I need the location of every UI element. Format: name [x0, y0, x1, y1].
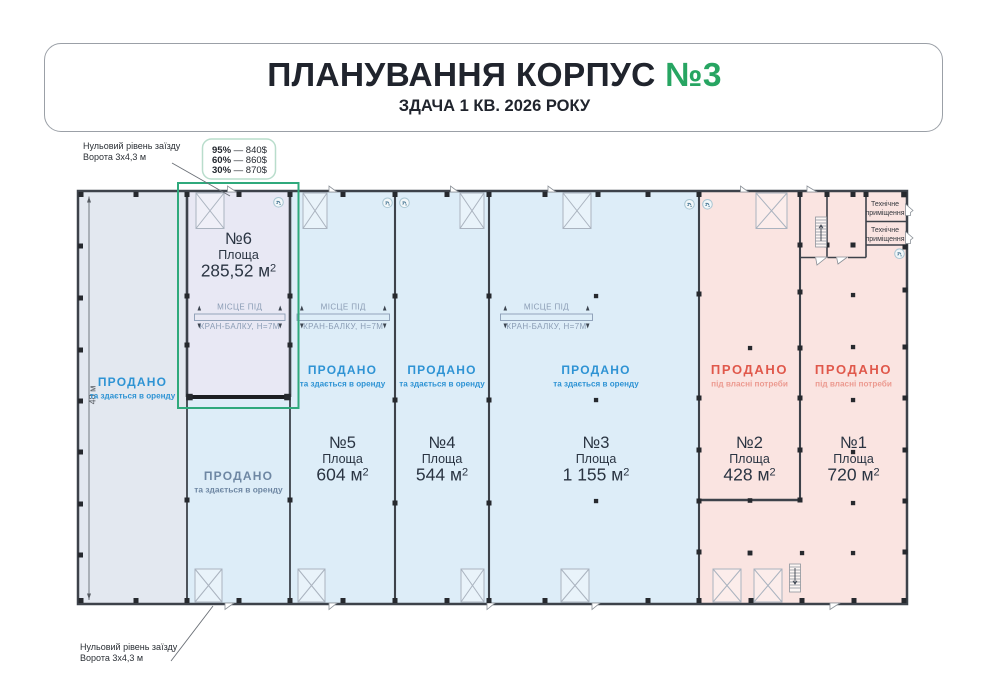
svg-text:приміщення: приміщення: [865, 235, 904, 243]
svg-text:№1: №1: [840, 434, 867, 452]
svg-text:№2: №2: [736, 434, 763, 452]
svg-text:30% — 870$: 30% — 870$: [212, 165, 268, 176]
svg-text:544 м2: 544 м2: [416, 465, 468, 485]
svg-text:ПРОДАНО: ПРОДАНО: [98, 375, 167, 389]
svg-text:під власні потреби: під власні потреби: [711, 379, 788, 389]
svg-text:720 м2: 720 м2: [827, 465, 879, 485]
svg-text:КРАН-БАЛКУ, Н=7М: КРАН-БАЛКУ, Н=7М: [200, 322, 280, 331]
svg-text:ПРОДАНО: ПРОДАНО: [711, 362, 788, 377]
svg-text:КРАН-БАЛКУ, Н=7М: КРАН-БАЛКУ, Н=7М: [506, 322, 586, 331]
svg-text:під власні потреби: під власні потреби: [815, 379, 892, 389]
svg-text:ПРОДАНО: ПРОДАНО: [815, 362, 892, 377]
svg-text:Ворота 3х4,3 м: Ворота 3х4,3 м: [83, 152, 146, 162]
svg-text:№5: №5: [329, 434, 356, 452]
svg-text:285,52 м2: 285,52 м2: [201, 261, 276, 281]
svg-text:604 м2: 604 м2: [316, 465, 368, 485]
svg-text:МІСЦЕ ПІД: МІСЦЕ ПІД: [217, 303, 262, 312]
svg-text:Технічне: Технічне: [871, 200, 899, 208]
svg-text:МІСЦЕ ПІД: МІСЦЕ ПІД: [321, 303, 366, 312]
svg-text:ПРОДАНО: ПРОДАНО: [204, 469, 273, 483]
svg-text:№4: №4: [429, 434, 456, 452]
svg-text:Нульовий рівень заїзду: Нульовий рівень заїзду: [83, 141, 181, 151]
svg-text:КРАН-БАЛКУ, Н=7М: КРАН-БАЛКУ, Н=7М: [303, 322, 383, 331]
svg-text:№3: №3: [583, 434, 610, 452]
svg-text:та здається в оренду: та здається в оренду: [553, 380, 639, 389]
svg-text:Нульовий рівень заїзду: Нульовий рівень заїзду: [80, 642, 178, 652]
svg-text:Технічне: Технічне: [871, 226, 899, 234]
svg-text:ПРОДАНО: ПРОДАНО: [561, 363, 630, 377]
svg-text:та здається в оренду: та здається в оренду: [90, 392, 176, 401]
svg-text:ПРОДАНО: ПРОДАНО: [308, 363, 377, 377]
svg-text:та здається в оренду: та здається в оренду: [300, 380, 386, 389]
svg-text:№6: №6: [225, 230, 252, 248]
svg-text:та здається в оренду: та здається в оренду: [194, 485, 283, 495]
svg-text:МІСЦЕ ПІД: МІСЦЕ ПІД: [524, 303, 569, 312]
svg-text:428 м2: 428 м2: [723, 465, 775, 485]
svg-text:приміщення: приміщення: [865, 209, 904, 217]
svg-text:Ворота 3х4,3 м: Ворота 3х4,3 м: [80, 653, 143, 663]
svg-text:та здається в оренду: та здається в оренду: [399, 380, 485, 389]
svg-text:ПРОДАНО: ПРОДАНО: [407, 363, 476, 377]
svg-text:1 155 м2: 1 155 м2: [563, 465, 630, 485]
